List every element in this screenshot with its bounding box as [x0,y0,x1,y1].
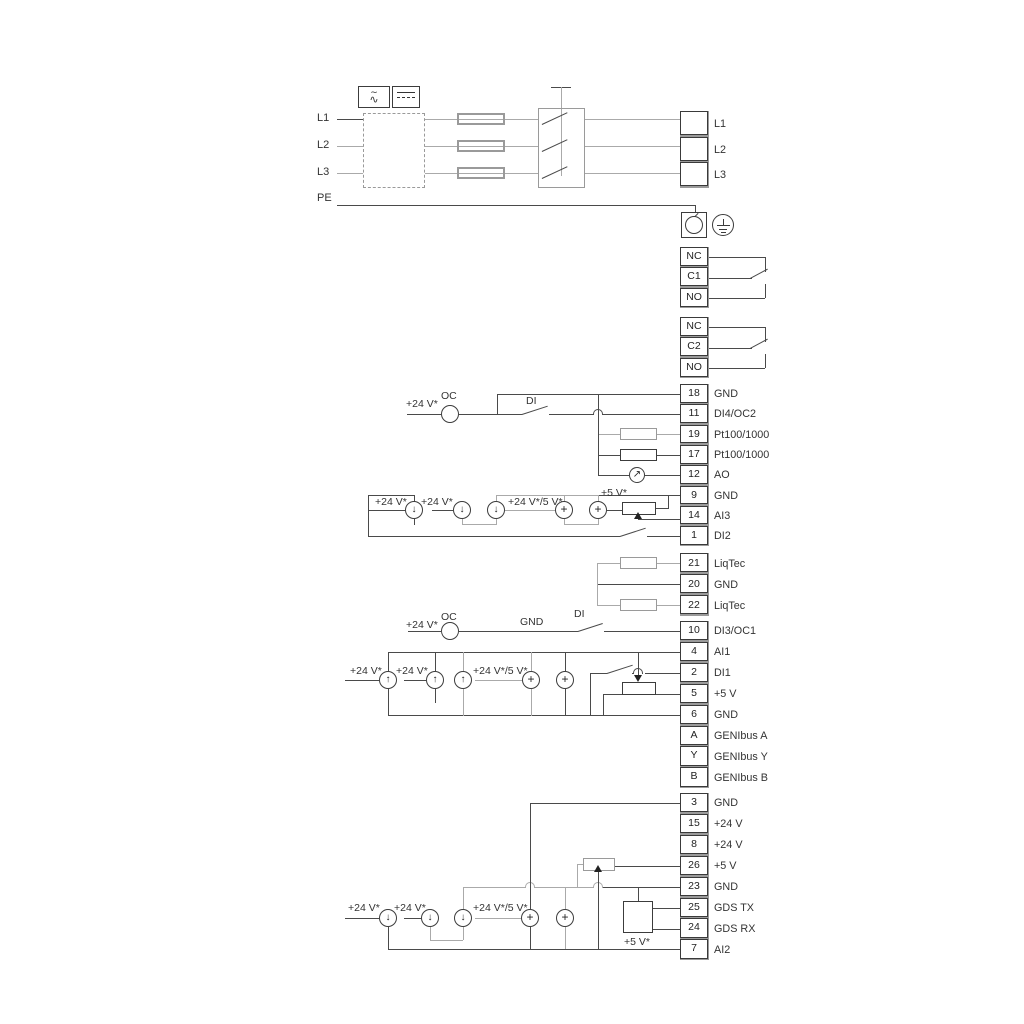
terminal-cell: 12 [680,465,708,484]
terminal-cell: 20 [680,574,708,593]
terminal-cell: NC [680,247,708,266]
wiper-arrow-icon [594,865,602,872]
wire-segment [337,146,363,147]
wire-segment [368,510,405,511]
fuse [457,140,505,152]
fuse [457,113,505,125]
signal-label: +24 V* [421,496,453,508]
di-switch-arm [607,665,633,675]
wire-segment [345,680,379,681]
wire-segment [463,652,464,671]
terminal-label: GDS TX [714,902,754,914]
wire-segment [590,673,591,716]
wire-segment [345,918,379,919]
wire-segment [565,652,566,671]
terminal-label: GND [714,579,738,591]
terminal-label: GND [714,709,738,721]
wire-segment [565,927,566,949]
wire-segment [708,368,765,369]
terminal-cell [680,162,708,186]
wire-segment [655,508,668,509]
earth-symbol-icon [719,229,727,230]
mains-filter-box [363,113,425,188]
wire-segment [577,864,578,887]
wire-segment [462,524,496,525]
terminal-cell: NO [680,288,708,307]
terminal-cell: 17 [680,445,708,464]
wiper-arrow-icon [634,675,642,682]
wire-segment [603,414,680,415]
terminal-cell: 2 [680,663,708,682]
fuse [457,167,505,179]
signal-label: +24 V* [348,902,380,914]
phase-label: L2 [317,139,329,151]
terminal-label: +24 V [714,818,743,830]
wire-segment [597,584,680,585]
open-collector-circle [441,622,459,640]
wire-segment [388,652,389,671]
signal-label: +24 V* [396,665,428,677]
terminal-label: GDS RX [714,923,755,935]
wire-segment [598,605,620,606]
terminal-label: DI2 [714,530,731,542]
signal-label: +24 V* [406,398,438,410]
wire-segment [414,519,415,525]
wire-segment [657,434,680,435]
signal-label: OC [441,390,457,402]
current-source-icon: ↓ [453,501,471,519]
wire-segment [565,689,566,716]
wire-segment [598,434,620,435]
wire-segment [603,887,680,888]
terminal-label: L3 [714,169,726,181]
wire-segment [564,524,598,525]
terminal-label: GND [714,388,738,400]
terminal-cell: 19 [680,425,708,444]
terminal-cell: Y [680,746,708,765]
terminal-cell: A [680,726,708,745]
signal-label: +5 V* [624,936,650,948]
wire-segment [530,927,531,949]
terminal-label: GENIbus A [714,730,767,742]
wire-segment [657,455,680,456]
signal-label: +24 V* [350,665,382,677]
wire-segment [531,689,532,716]
signal-label: +24 V*/5 V* [473,665,528,677]
phase-label: L1 [317,112,329,124]
ac-wave: ∿ [358,96,390,104]
terminal-label: +5 V [714,860,737,872]
terminal-cell: 14 [680,506,708,525]
terminal-label: AI2 [714,944,730,956]
wire-segment [430,940,463,941]
wire-segment [603,694,604,716]
wire-segment [585,173,680,174]
signal-label: +24 V* [394,902,426,914]
di-switch-arm [620,528,646,538]
wire-segment [388,949,598,950]
potentiometer [622,682,656,695]
terminal-cell: NC [680,317,708,336]
wire-segment [765,354,766,368]
wire-segment [653,929,680,930]
terminal-label: Pt100/1000 [714,429,769,441]
wire-segment [368,536,620,537]
terminal-cell: NO [680,358,708,377]
earth-symbol-icon [717,225,730,226]
wire-segment [430,927,431,940]
signal-label: DI [526,395,537,407]
wire-segment [598,563,620,564]
signal-label: +24 V*/5 V* [473,902,528,914]
wire-segment [404,918,421,919]
terminal-cell: 23 [680,877,708,896]
wire-segment [708,298,765,299]
terminal-label: LiqTec [714,558,745,570]
pt100-resistor [620,449,657,461]
terminal-cell: 22 [680,595,708,614]
wire-segment [708,278,752,279]
signal-label: +5 V* [601,487,627,499]
current-source-icon: ↑ [426,671,444,689]
wire-segment [475,680,522,681]
wire-segment [535,887,593,888]
wiper-arrow-icon [634,512,642,519]
terminal-label: L1 [714,118,726,130]
terminal-label: GENIbus Y [714,751,768,763]
wire-segment [598,455,620,456]
phase-label: L3 [317,166,329,178]
liqtec-resistor [620,599,657,611]
wire-segment [407,414,441,415]
terminal-label: DI3/OC1 [714,625,756,637]
terminal-cell: 7 [680,939,708,958]
wire-segment [497,394,680,395]
ac-symbol-icon: ∼∿ [358,86,390,104]
wire-segment [463,887,464,909]
wire-segment [656,694,680,695]
wire-segment [598,871,599,949]
wire-segment [388,715,680,716]
terminal-cell: 26 [680,856,708,875]
wire-segment [564,519,565,525]
wire-segment [585,146,680,147]
terminal-cell [680,111,708,135]
wire-segment [337,205,695,206]
terminal-label: AI3 [714,510,730,522]
ao-meter-icon: ↗ [629,467,645,483]
wire-segment [638,887,639,901]
signal-label: DI [574,608,585,620]
di-switch-arm [522,406,548,416]
terminal-cell: 10 [680,621,708,640]
wire-segment [505,510,555,511]
terminal-label: L2 [714,144,726,156]
terminal-label: GENIbus B [714,772,768,784]
terminal-label: +24 V [714,839,743,851]
dc-dashed-line [397,97,415,98]
terminal-cell: 1 [680,526,708,545]
wire-segment [388,652,680,653]
wire-segment [598,394,599,475]
terminal-label: AI1 [714,646,730,658]
signal-label: +24 V* [406,619,438,631]
terminal-cell: 15 [680,814,708,833]
wire-segment [496,519,497,525]
screw-circle [685,216,703,234]
wire-segment [598,519,599,525]
wire-segment [604,631,680,632]
wire-segment [531,652,532,671]
terminal-label: AO [714,469,730,481]
terminal-label: DI4/OC2 [714,408,756,420]
wire-segment [435,652,436,671]
wire-segment [337,173,363,174]
terminal-cell: 9 [680,486,708,505]
terminal-cell: 18 [680,384,708,403]
terminal-label: LiqTec [714,600,745,612]
gds-sensor-box [623,901,653,933]
wire-segment [408,631,441,632]
earth-symbol-icon [721,232,726,233]
voltage-source-icon: + [556,909,574,927]
wire-segment [475,918,521,919]
wire-segment [497,414,522,415]
wire-segment [653,908,680,909]
wire-segment [463,927,464,940]
wire-segment [590,673,607,674]
terminal-label: Pt100/1000 [714,449,769,461]
terminal-cell: 8 [680,835,708,854]
dc-symbol-icon [397,92,415,100]
terminal-label: GND [714,881,738,893]
open-collector-circle [441,405,459,423]
wire-segment [368,495,369,537]
terminal-cell [680,137,708,161]
wire-segment [598,949,680,950]
voltage-source-icon: + [556,671,574,689]
wire-segment [708,348,752,349]
dc-solid-line [397,92,415,93]
terminal-cell: 21 [680,553,708,572]
relay-contact-arm [750,269,768,280]
wire-segment [497,394,498,415]
wire-segment [585,119,680,120]
terminal-cell: C2 [680,337,708,356]
wire-segment [603,694,622,695]
pt100-resistor [620,428,657,440]
wire-segment [638,519,680,520]
terminal-cell: C1 [680,267,708,286]
wire-segment [645,475,680,476]
wire-segment [657,605,680,606]
terminal-label: DI1 [714,667,731,679]
voltage-source-icon: + [589,501,607,519]
terminal-cell: B [680,767,708,786]
wire-segment [647,536,680,537]
wire-segment [708,257,765,258]
wire-segment [607,510,622,511]
terminal-label: GND [714,797,738,809]
signal-label: GND [520,616,543,628]
relay-contact-arm [750,339,768,350]
wire-segment [432,510,453,511]
signal-label: +24 V* [375,496,407,508]
wire-segment [708,327,765,328]
di-switch-arm [578,623,603,632]
wire-segment [388,927,389,949]
wire-segment [645,673,680,674]
signal-label: OC [441,611,457,623]
wiring-diagram: ∼∿↓↓↓++↑↑↑++↓↓↓++↗L1L2L3NCC1NONCC2NO18GN… [0,0,1024,1024]
signal-label: +24 V*/5 V* [508,496,563,508]
wire-segment [388,689,389,716]
wire-segment [657,563,680,564]
terminal-cell: 5 [680,684,708,703]
wire-segment [668,495,669,509]
wire-segment [597,563,598,606]
current-source-icon: ↓ [454,909,472,927]
wire-segment [435,689,436,703]
wire-segment [463,887,525,888]
current-source-icon: ↑ [454,671,472,689]
wire-segment [462,519,463,525]
wire-segment [765,284,766,298]
wire-segment [549,414,593,415]
current-source-icon: ↓ [487,501,505,519]
wire-segment [459,631,578,632]
terminal-cell: 25 [680,898,708,917]
wire-segment [530,803,531,909]
phase-label: PE [317,192,332,204]
wire-segment [463,689,464,716]
terminal-label: GND [714,490,738,502]
wire-segment [615,866,680,867]
wire-segment [459,414,497,415]
terminal-cell: 11 [680,404,708,423]
terminal-cell: 24 [680,918,708,937]
wire-segment [598,475,629,476]
wire-segment [337,119,363,120]
wire-segment [530,803,680,804]
terminal-cell: 6 [680,705,708,724]
wire-segment [565,887,566,909]
terminal-cell: 4 [680,642,708,661]
terminal-cell: 3 [680,793,708,812]
liqtec-resistor [620,557,657,569]
terminal-label: +5 V [714,688,737,700]
wire-segment [404,680,426,681]
